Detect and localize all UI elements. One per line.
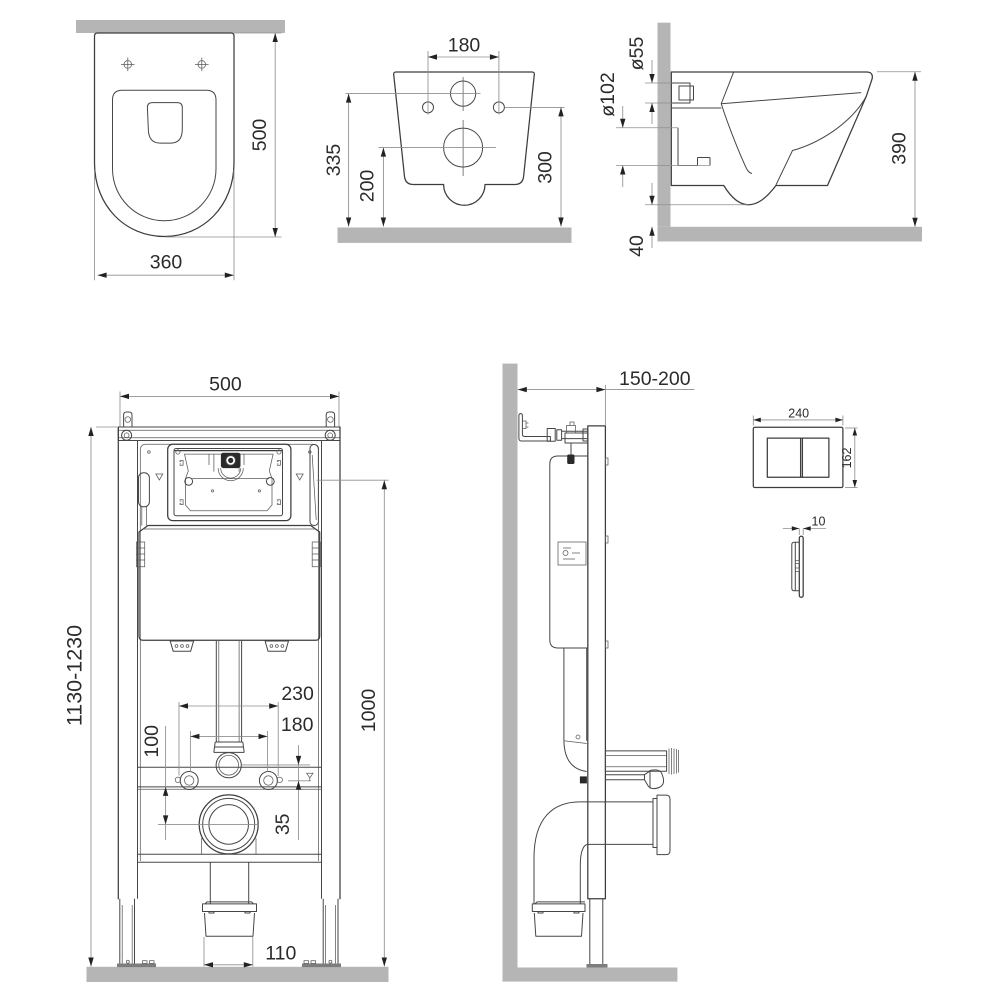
svg-text:500: 500 bbox=[249, 119, 271, 152]
svg-text:1130-1230: 1130-1230 bbox=[63, 625, 87, 726]
svg-text:500: 500 bbox=[209, 373, 242, 395]
svg-text:240: 240 bbox=[788, 406, 809, 420]
svg-text:110: 110 bbox=[265, 943, 296, 965]
svg-text:390: 390 bbox=[888, 132, 910, 165]
svg-text:100: 100 bbox=[141, 725, 163, 758]
svg-text:150-200: 150-200 bbox=[619, 368, 691, 390]
svg-text:180: 180 bbox=[281, 714, 314, 736]
svg-text:40: 40 bbox=[626, 235, 648, 257]
svg-text:10: 10 bbox=[812, 514, 826, 528]
svg-text:360: 360 bbox=[150, 252, 183, 274]
svg-text:180: 180 bbox=[448, 35, 481, 57]
svg-text:230: 230 bbox=[281, 683, 314, 705]
svg-text:ø102: ø102 bbox=[597, 72, 619, 116]
svg-text:335: 335 bbox=[323, 144, 345, 177]
svg-text:162: 162 bbox=[840, 448, 854, 469]
svg-text:ø55: ø55 bbox=[626, 37, 648, 71]
svg-text:35: 35 bbox=[272, 813, 294, 835]
svg-text:300: 300 bbox=[534, 151, 556, 184]
svg-text:1000: 1000 bbox=[358, 689, 380, 733]
svg-text:200: 200 bbox=[356, 170, 378, 203]
